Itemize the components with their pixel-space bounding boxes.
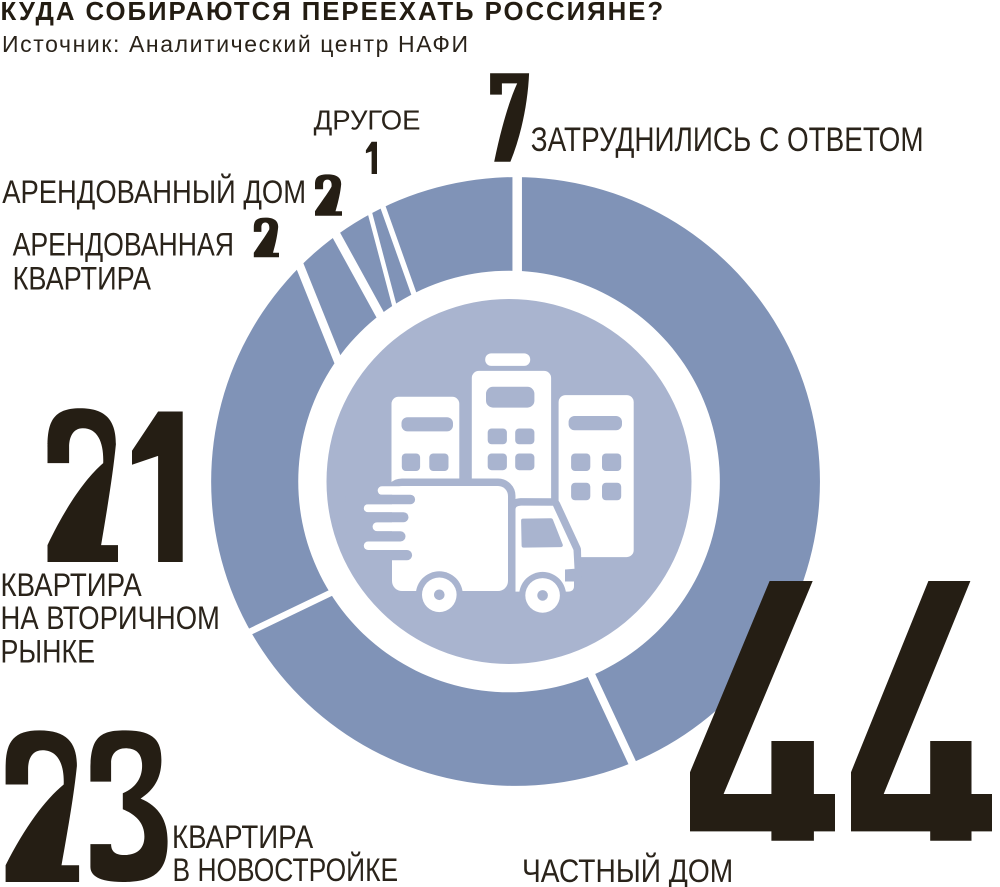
svg-text:ДРУГОЕ: ДРУГОЕ — [314, 104, 421, 135]
svg-text:КУДА СОБИРАЮТСЯ ПЕРЕЕХАТЬ РОСС: КУДА СОБИРАЮТСЯ ПЕРЕЕХАТЬ РОССИЯНЕ? — [1, 0, 666, 26]
svg-text:КВАРТИРА: КВАРТИРА — [13, 261, 151, 297]
svg-text:Источник: Аналитический центр: Источник: Аналитический центр НАФИ — [2, 31, 470, 57]
svg-text:РЫНКЕ: РЫНКЕ — [1, 634, 95, 670]
svg-text:В НОВОСТРОЙКЕ: В НОВОСТРОЙКЕ — [173, 852, 399, 887]
svg-text:НА ВТОРИЧНОМ: НА ВТОРИЧНОМ — [1, 601, 220, 636]
svg-text:КВАРТИРА: КВАРТИРА — [172, 820, 313, 855]
svg-text:АРЕНДОВАННАЯ: АРЕНДОВАННАЯ — [13, 227, 234, 263]
svg-text:КВАРТИРА: КВАРТИРА — [1, 568, 142, 603]
svg-text:АРЕНДОВАННЫЙ ДОМ: АРЕНДОВАННЫЙ ДОМ — [2, 174, 306, 211]
svg-text:ЗАТРУДНИЛИСЬ С ОТВЕТОМ: ЗАТРУДНИЛИСЬ С ОТВЕТОМ — [531, 120, 924, 158]
svg-text:ЧАСТНЫЙ ДОМ: ЧАСТНЫЙ ДОМ — [522, 853, 733, 887]
